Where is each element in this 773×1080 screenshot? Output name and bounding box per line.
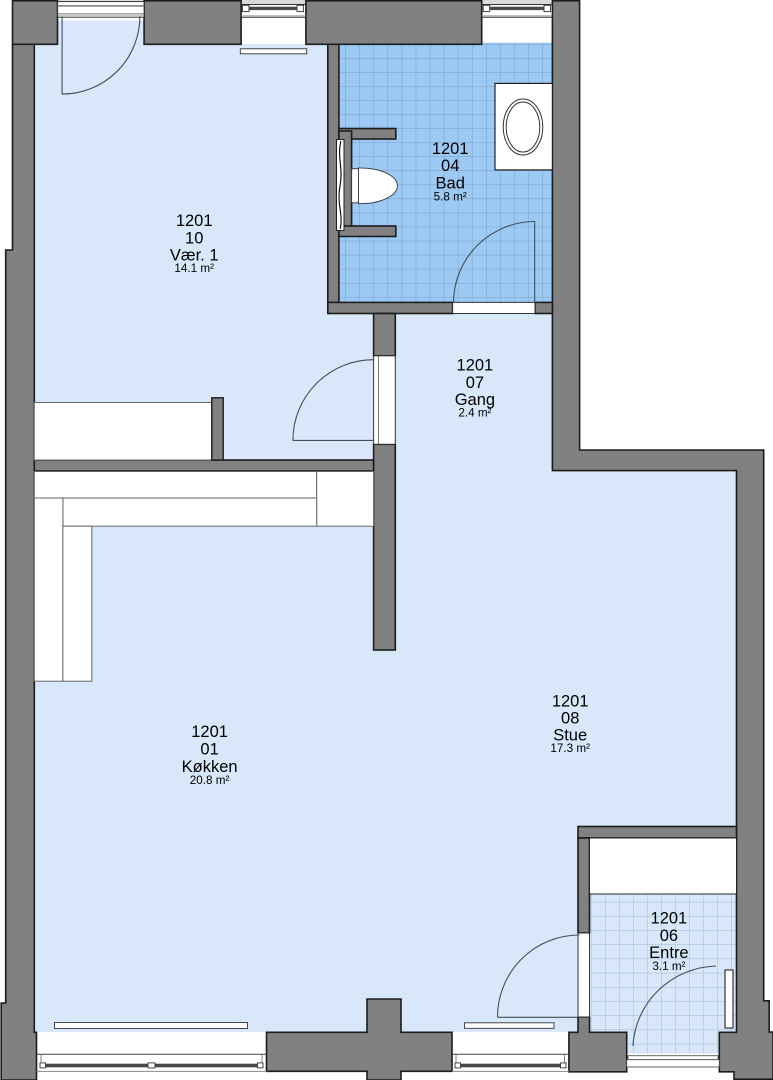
svg-text:1201: 1201 [191, 723, 228, 741]
svg-text:1201: 1201 [432, 140, 469, 158]
svg-text:17.3 m²: 17.3 m² [550, 742, 590, 755]
svg-text:14.1 m²: 14.1 m² [174, 262, 214, 275]
svg-text:5.8 m²: 5.8 m² [434, 190, 467, 203]
svg-text:1201: 1201 [176, 212, 213, 230]
svg-text:3.1 m²: 3.1 m² [652, 960, 685, 973]
svg-text:06: 06 [660, 927, 678, 945]
svg-text:1201: 1201 [651, 909, 688, 927]
svg-text:08: 08 [561, 709, 579, 727]
svg-text:1201: 1201 [457, 357, 494, 375]
svg-text:10: 10 [185, 229, 203, 247]
svg-text:07: 07 [466, 374, 484, 392]
svg-text:2.4 m²: 2.4 m² [458, 406, 491, 419]
svg-text:04: 04 [441, 157, 459, 175]
svg-text:1201: 1201 [552, 693, 589, 711]
svg-text:20.8 m²: 20.8 m² [190, 774, 230, 787]
svg-text:01: 01 [200, 741, 218, 759]
